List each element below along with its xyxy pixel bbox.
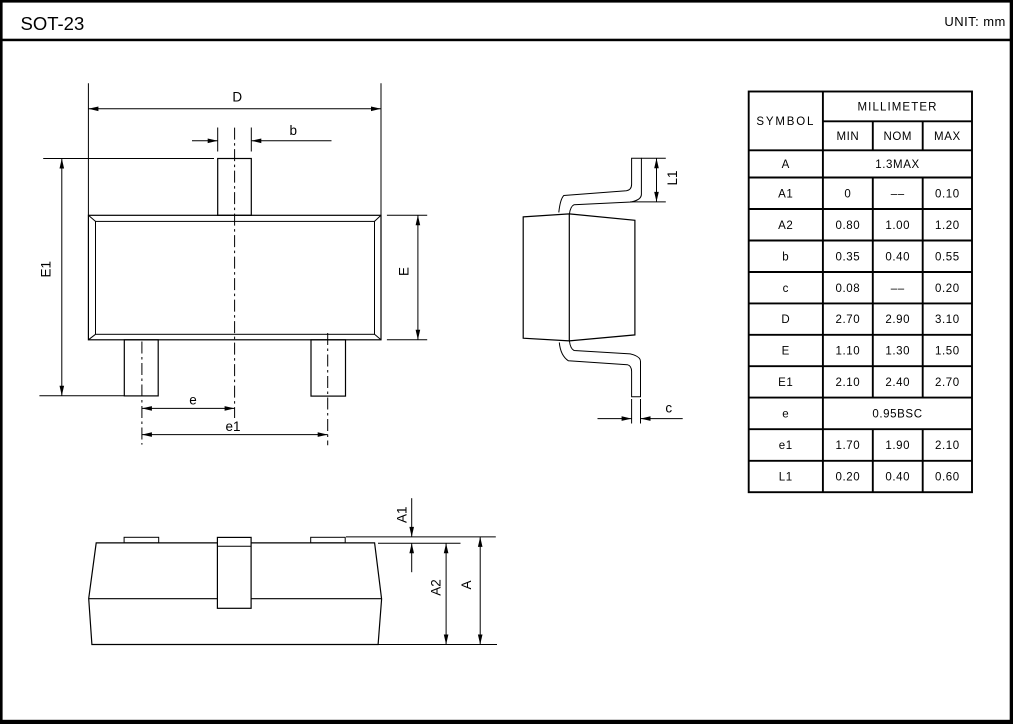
svg-text:e: e xyxy=(782,409,789,421)
svg-text:c: c xyxy=(783,283,789,295)
svg-text:e1: e1 xyxy=(779,440,793,452)
svg-text:1.20: 1.20 xyxy=(935,220,960,232)
svg-text:UNIT: mm: UNIT: mm xyxy=(944,14,1005,29)
svg-text:A: A xyxy=(459,580,474,589)
svg-text:MIN: MIN xyxy=(836,131,859,143)
svg-text:e: e xyxy=(189,393,197,408)
svg-text:2.70: 2.70 xyxy=(935,377,960,389)
svg-text:SYMBOL: SYMBOL xyxy=(756,116,815,128)
svg-text:2.10: 2.10 xyxy=(836,377,861,389)
svg-text:1.50: 1.50 xyxy=(935,346,960,358)
svg-text:E1: E1 xyxy=(39,261,54,278)
svg-text:1.30: 1.30 xyxy=(885,346,910,358)
svg-text:MILLIMETER: MILLIMETER xyxy=(857,102,937,114)
svg-text:0.10: 0.10 xyxy=(935,188,960,200)
svg-text:D: D xyxy=(781,314,790,326)
svg-text:1.00: 1.00 xyxy=(885,220,910,232)
svg-text:2.40: 2.40 xyxy=(885,377,910,389)
svg-text:2.90: 2.90 xyxy=(885,314,910,326)
svg-text:E: E xyxy=(397,267,412,276)
svg-text:NOM: NOM xyxy=(883,131,912,143)
svg-text:A: A xyxy=(782,159,790,171)
svg-text:0: 0 xyxy=(844,188,851,200)
svg-text:0.40: 0.40 xyxy=(885,251,910,263)
svg-text:1.3MAX: 1.3MAX xyxy=(875,159,920,171)
svg-text:0.35: 0.35 xyxy=(836,251,861,263)
svg-text:E1: E1 xyxy=(778,377,793,389)
svg-text:0.95BSC: 0.95BSC xyxy=(872,409,922,421)
svg-text:MAX: MAX xyxy=(934,131,961,143)
svg-text:L1: L1 xyxy=(779,472,793,484)
svg-text:e1: e1 xyxy=(225,419,240,434)
svg-text:D: D xyxy=(232,89,242,104)
svg-text:SOT-23: SOT-23 xyxy=(21,13,85,34)
svg-text:0.08: 0.08 xyxy=(836,283,861,295)
svg-text:L1: L1 xyxy=(665,170,680,185)
svg-text:2.70: 2.70 xyxy=(836,314,861,326)
svg-text:1.70: 1.70 xyxy=(836,440,861,452)
svg-text:A1: A1 xyxy=(778,188,793,200)
svg-text:0.55: 0.55 xyxy=(935,251,960,263)
svg-text:b: b xyxy=(782,251,789,263)
svg-text:A2: A2 xyxy=(428,579,443,596)
svg-text:A2: A2 xyxy=(778,220,793,232)
svg-text:1.10: 1.10 xyxy=(836,346,861,358)
svg-text:b: b xyxy=(290,123,298,138)
svg-text:c: c xyxy=(665,400,672,415)
svg-text:0.40: 0.40 xyxy=(885,472,910,484)
svg-text:––: –– xyxy=(891,188,905,200)
svg-text:2.10: 2.10 xyxy=(935,440,960,452)
svg-text:0.80: 0.80 xyxy=(836,220,861,232)
svg-text:3.10: 3.10 xyxy=(935,314,960,326)
svg-text:0.60: 0.60 xyxy=(935,472,960,484)
svg-text:0.20: 0.20 xyxy=(836,472,861,484)
svg-text:0.20: 0.20 xyxy=(935,283,960,295)
svg-text:E: E xyxy=(782,346,790,358)
svg-text:––: –– xyxy=(891,283,905,295)
svg-text:A1: A1 xyxy=(394,506,409,523)
svg-text:1.90: 1.90 xyxy=(885,440,910,452)
